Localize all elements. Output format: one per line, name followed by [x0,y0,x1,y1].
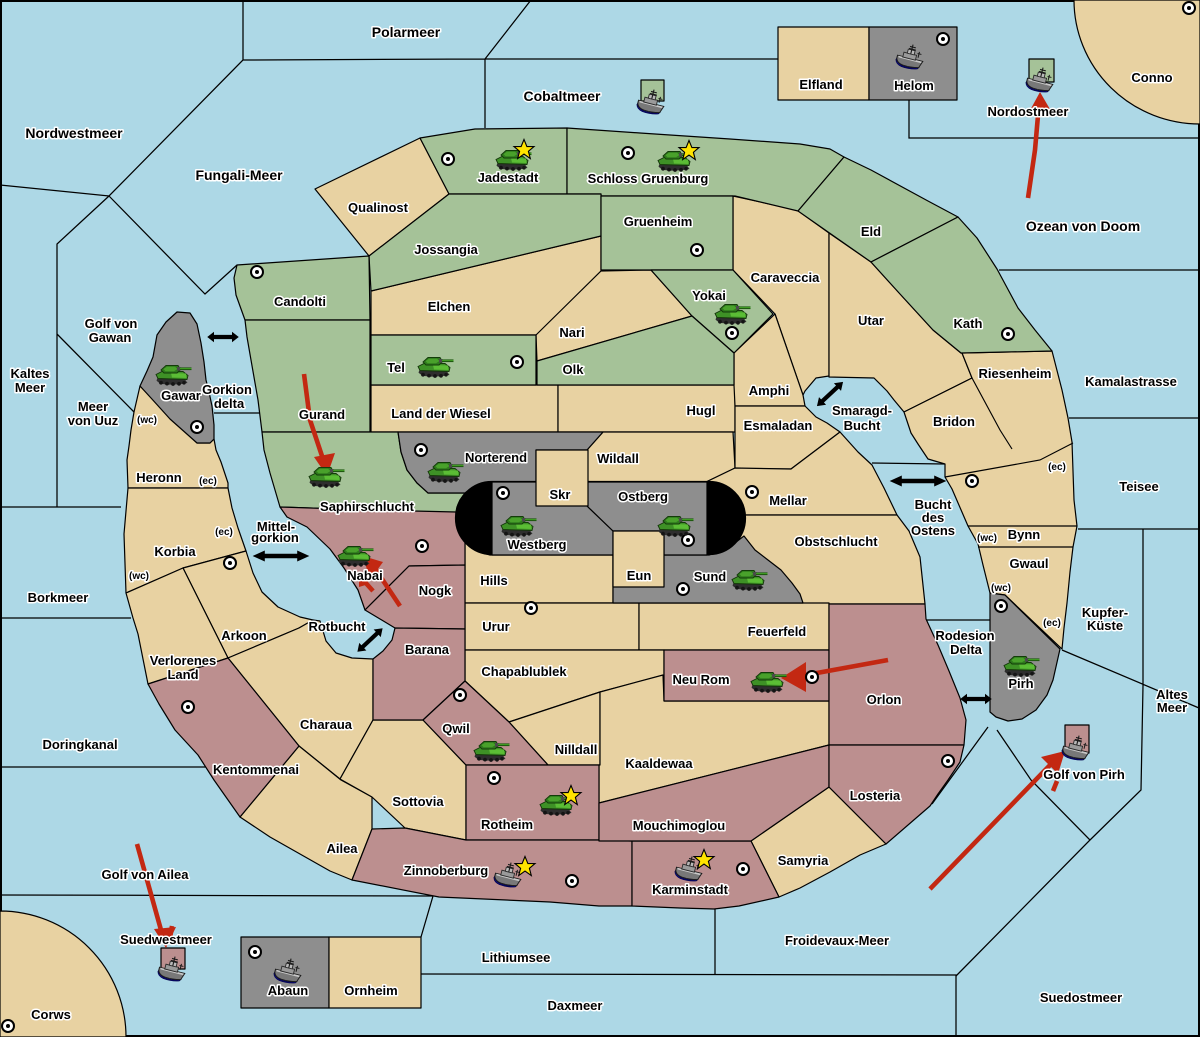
svg-text:Jossangia: Jossangia [414,242,478,257]
svg-text:Arkoon: Arkoon [221,628,267,643]
svg-text:Hills: Hills [480,573,507,588]
svg-text:Qwil: Qwil [442,721,469,736]
svg-text:Daxmeer: Daxmeer [548,998,603,1013]
svg-text:Kath: Kath [954,316,983,331]
svg-text:Utar: Utar [858,313,884,328]
svg-text:Smaragd-: Smaragd- [832,403,892,418]
svg-text:Gawar: Gawar [161,388,201,403]
svg-text:Norterend: Norterend [465,450,527,465]
svg-text:Jadestadt: Jadestadt [478,170,539,185]
svg-text:Conno: Conno [1131,70,1172,85]
svg-text:Lithiumsee: Lithiumsee [482,950,551,965]
svg-text:Gwaul: Gwaul [1009,556,1048,571]
svg-text:Gorkion: Gorkion [202,382,252,397]
svg-text:Nordostmeer: Nordostmeer [988,104,1069,119]
svg-text:(wc): (wc) [129,571,149,582]
svg-text:Froidevaux-Meer: Froidevaux-Meer [785,933,889,948]
svg-text:Rodesion: Rodesion [935,628,994,643]
svg-text:Karminstadt: Karminstadt [652,882,729,897]
svg-text:Tel: Tel [387,360,405,375]
svg-text:Orlon: Orlon [867,692,902,707]
svg-text:Riesenheim: Riesenheim [979,366,1052,381]
svg-text:Pirh: Pirh [1008,676,1033,691]
svg-text:Eld: Eld [861,224,881,239]
svg-text:von Uuz: von Uuz [68,413,119,428]
svg-text:Corws: Corws [31,1007,71,1022]
svg-text:Zinnoberburg: Zinnoberburg [404,863,489,878]
svg-text:Heronn: Heronn [136,470,182,485]
svg-text:Golf von Pirh: Golf von Pirh [1043,767,1125,782]
svg-text:Mouchimoglou: Mouchimoglou [633,818,725,833]
svg-text:Meer: Meer [1157,700,1187,715]
svg-text:(ec): (ec) [215,527,233,538]
svg-text:Barana: Barana [405,642,450,657]
svg-text:Wildall: Wildall [597,451,639,466]
svg-text:Amphi: Amphi [749,383,789,398]
svg-text:Sottovia: Sottovia [392,794,444,809]
svg-text:delta: delta [214,396,245,411]
svg-text:Chapablublek: Chapablublek [481,664,567,679]
svg-text:Abaun: Abaun [268,983,309,998]
svg-text:Caraveccia: Caraveccia [751,270,820,285]
svg-text:Verlorenes: Verlorenes [150,653,217,668]
svg-text:Elfland: Elfland [799,77,842,92]
svg-text:Candolti: Candolti [274,294,326,309]
svg-text:Polarmeer: Polarmeer [372,24,441,40]
svg-text:Skr: Skr [550,487,571,502]
svg-text:Mellar: Mellar [769,493,807,508]
svg-text:(wc): (wc) [991,583,1011,594]
svg-text:Land der Wiesel: Land der Wiesel [391,406,491,421]
svg-text:Borkmeer: Borkmeer [28,590,89,605]
svg-text:Elchen: Elchen [428,299,471,314]
svg-text:Ostens: Ostens [911,523,955,538]
svg-text:Fungali-Meer: Fungali-Meer [195,167,283,183]
svg-text:Nabai: Nabai [347,568,382,583]
svg-text:Rotbucht: Rotbucht [308,619,366,634]
svg-text:Delta: Delta [950,642,983,657]
svg-text:Charaua: Charaua [300,717,353,732]
svg-text:(ec): (ec) [1048,462,1066,473]
svg-text:Nordwestmeer: Nordwestmeer [25,125,123,141]
svg-text:Hugl: Hugl [687,403,716,418]
svg-text:Suedwestmeer: Suedwestmeer [120,932,212,947]
svg-text:Yokai: Yokai [692,288,726,303]
svg-text:(wc): (wc) [977,533,997,544]
svg-text:Ostberg: Ostberg [618,489,668,504]
svg-text:Ornheim: Ornheim [344,983,397,998]
svg-text:Cobaltmeer: Cobaltmeer [523,88,601,104]
svg-text:Nilldall: Nilldall [555,742,598,757]
svg-text:Golf von Ailea: Golf von Ailea [102,867,190,882]
svg-text:Korbia: Korbia [154,544,196,559]
svg-text:Sund: Sund [694,569,727,584]
svg-text:(wc): (wc) [137,415,157,426]
svg-text:Nogk: Nogk [419,583,452,598]
svg-text:Gurand: Gurand [299,407,345,422]
svg-text:Schloss Gruenburg: Schloss Gruenburg [588,171,709,186]
svg-text:Bridon: Bridon [933,414,975,429]
svg-text:Gawan: Gawan [89,330,132,345]
svg-text:gorkion: gorkion [251,530,299,545]
svg-text:Losteria: Losteria [850,788,901,803]
svg-text:Esmaladan: Esmaladan [744,418,813,433]
svg-text:Qualinost: Qualinost [348,200,409,215]
svg-text:Bynn: Bynn [1008,527,1041,542]
svg-text:Golf von: Golf von [85,316,138,331]
svg-text:Gruenheim: Gruenheim [624,214,693,229]
svg-text:Meer: Meer [15,380,45,395]
svg-text:Saphirschlucht: Saphirschlucht [320,499,415,514]
svg-text:Suedostmeer: Suedostmeer [1040,990,1122,1005]
svg-text:Ailea: Ailea [326,841,358,856]
svg-text:Kentommenai: Kentommenai [213,762,299,777]
svg-text:Kaltes: Kaltes [10,366,49,381]
svg-text:Nari: Nari [559,325,584,340]
svg-text:Bucht: Bucht [844,418,882,433]
svg-text:Samyria: Samyria [778,853,829,868]
svg-text:Westberg: Westberg [508,537,567,552]
svg-text:Feuerfeld: Feuerfeld [748,624,807,639]
svg-text:Küste: Küste [1087,618,1123,633]
svg-text:Doringkanal: Doringkanal [42,737,117,752]
svg-text:Ozean von Doom: Ozean von Doom [1026,218,1140,234]
svg-text:(ec): (ec) [1043,618,1061,629]
svg-text:Kamalastrasse: Kamalastrasse [1085,374,1177,389]
svg-text:Eun: Eun [627,568,652,583]
svg-text:Neu Rom: Neu Rom [672,672,729,687]
svg-text:Land: Land [167,667,198,682]
svg-text:Obstschlucht: Obstschlucht [794,534,878,549]
svg-text:Olk: Olk [563,362,585,377]
svg-text:Rotheim: Rotheim [481,817,533,832]
svg-text:Teisee: Teisee [1119,479,1159,494]
svg-text:(ec): (ec) [199,476,217,487]
svg-text:Meer: Meer [78,399,108,414]
svg-text:Kaaldewaa: Kaaldewaa [625,756,693,771]
svg-text:Urur: Urur [482,619,509,634]
svg-text:Helom: Helom [894,78,934,93]
